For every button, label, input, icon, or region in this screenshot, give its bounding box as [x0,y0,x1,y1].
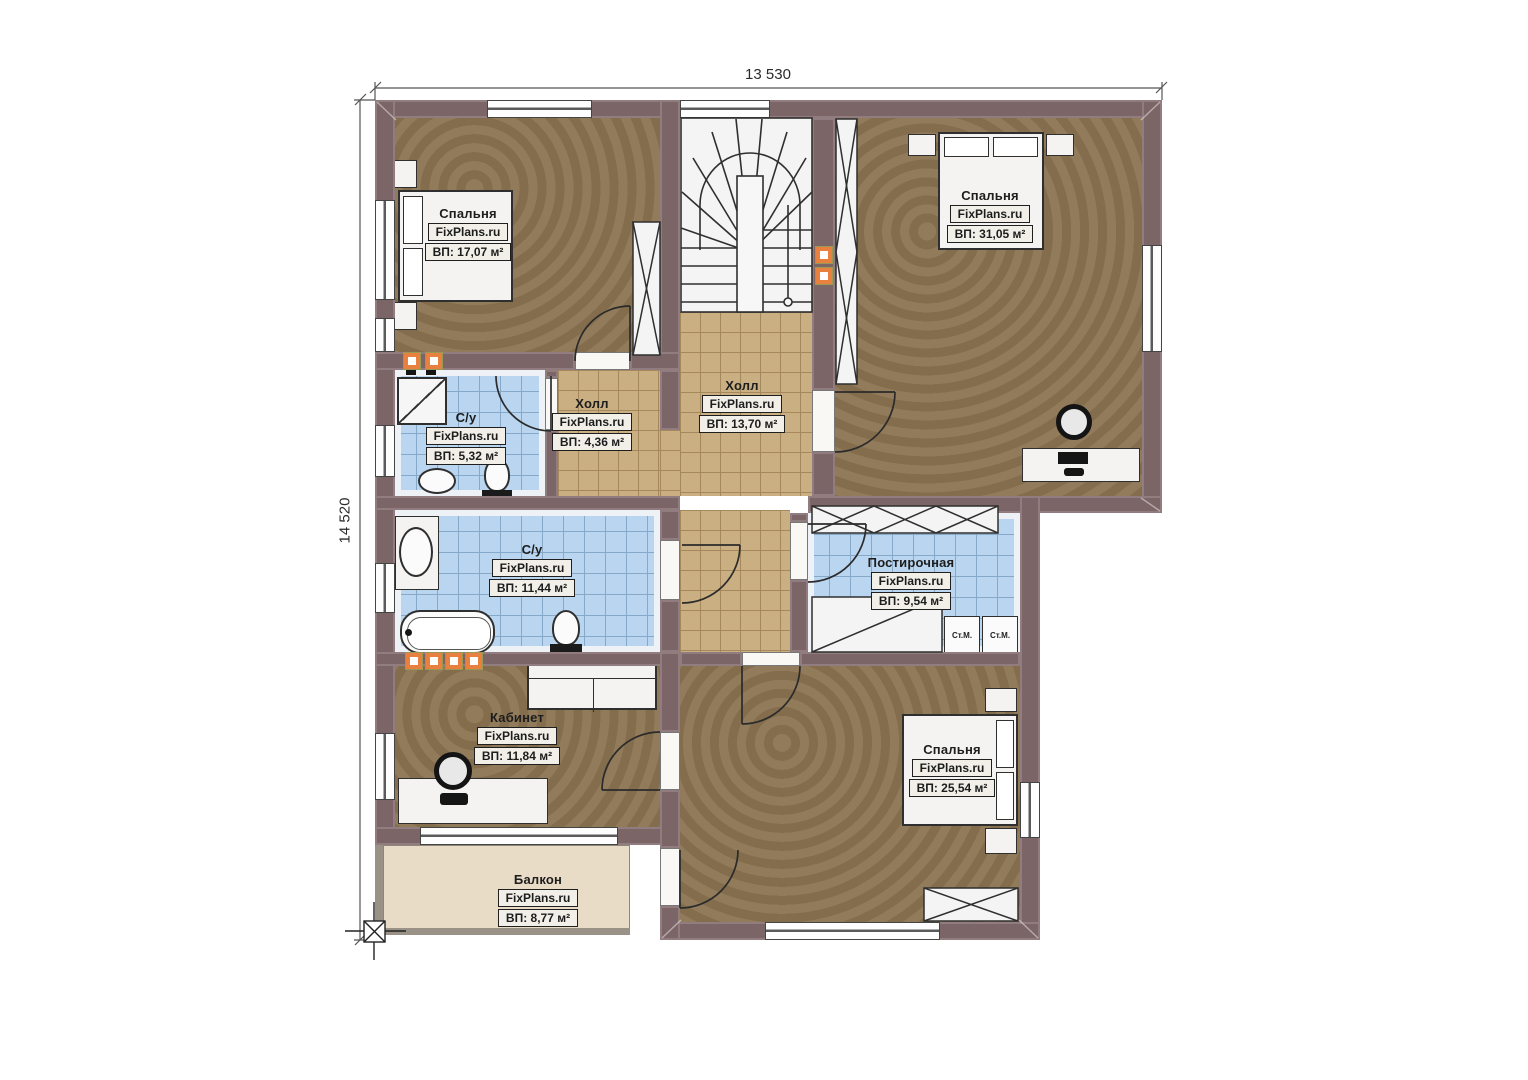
room-label-bedroom-top-left: Спальня FixPlans.ru ВП: 17,07 м² [398,206,538,261]
room-label-bathroom-large: С/у FixPlans.ru ВП: 11,44 м² [472,542,592,597]
dimension-left-label: 14 520 [337,481,354,561]
room-label-bathroom-small: С/у FixPlans.ru ВП: 5,32 м² [408,410,524,465]
room-area: ВП: 11,44 м² [489,579,575,597]
room-watermark: FixPlans.ru [871,572,952,590]
room-area: ВП: 13,70 м² [699,415,786,433]
corner-marker [345,902,406,960]
room-label-balcony: Балкон FixPlans.ru ВП: 8,77 м² [478,872,598,927]
room-label-office: Кабинет FixPlans.ru ВП: 11,84 м² [457,710,577,765]
room-name: Холл [575,396,608,411]
room-watermark: FixPlans.ru [702,395,783,413]
room-watermark: FixPlans.ru [428,223,509,241]
room-watermark: FixPlans.ru [477,727,558,745]
room-label-bedroom-top-right: Спальня FixPlans.ru ВП: 31,05 м² [920,188,1060,243]
room-area: ВП: 9,54 м² [871,592,951,610]
room-name: Спальня [923,742,981,757]
room-area: ВП: 8,77 м² [498,909,578,927]
room-watermark: FixPlans.ru [498,889,579,907]
room-area: ВП: 4,36 м² [552,433,632,451]
dimension-top-label: 13 530 [728,66,808,83]
room-watermark: FixPlans.ru [912,759,993,777]
room-watermark: FixPlans.ru [426,427,507,445]
room-watermark: FixPlans.ru [950,205,1031,223]
room-label-hall-small: Холл FixPlans.ru ВП: 4,36 м² [532,396,652,451]
room-name: Кабинет [490,710,544,725]
room-name: С/у [522,542,543,557]
room-name: С/у [456,410,477,425]
room-name: Спальня [439,206,497,221]
room-area: ВП: 31,05 м² [947,225,1034,243]
room-name: Постирочная [868,555,955,570]
room-watermark: FixPlans.ru [552,413,633,431]
room-name: Балкон [514,872,562,887]
room-area: ВП: 11,84 м² [474,747,560,765]
room-name: Спальня [961,188,1019,203]
room-label-laundry: Постирочная FixPlans.ru ВП: 9,54 м² [841,555,981,610]
room-label-bedroom-bottom: Спальня FixPlans.ru ВП: 25,54 м² [882,742,1022,797]
room-name: Холл [725,378,758,393]
room-area: ВП: 17,07 м² [425,243,512,261]
room-label-hall-main: Холл FixPlans.ru ВП: 13,70 м² [680,378,804,433]
room-area: ВП: 25,54 м² [909,779,996,797]
plan-linework [0,0,1528,1080]
floor-plan-canvas: Ст.М. Ст.М. [0,0,1528,1080]
staircase [681,118,812,312]
room-watermark: FixPlans.ru [492,559,573,577]
room-area: ВП: 5,32 м² [426,447,506,465]
